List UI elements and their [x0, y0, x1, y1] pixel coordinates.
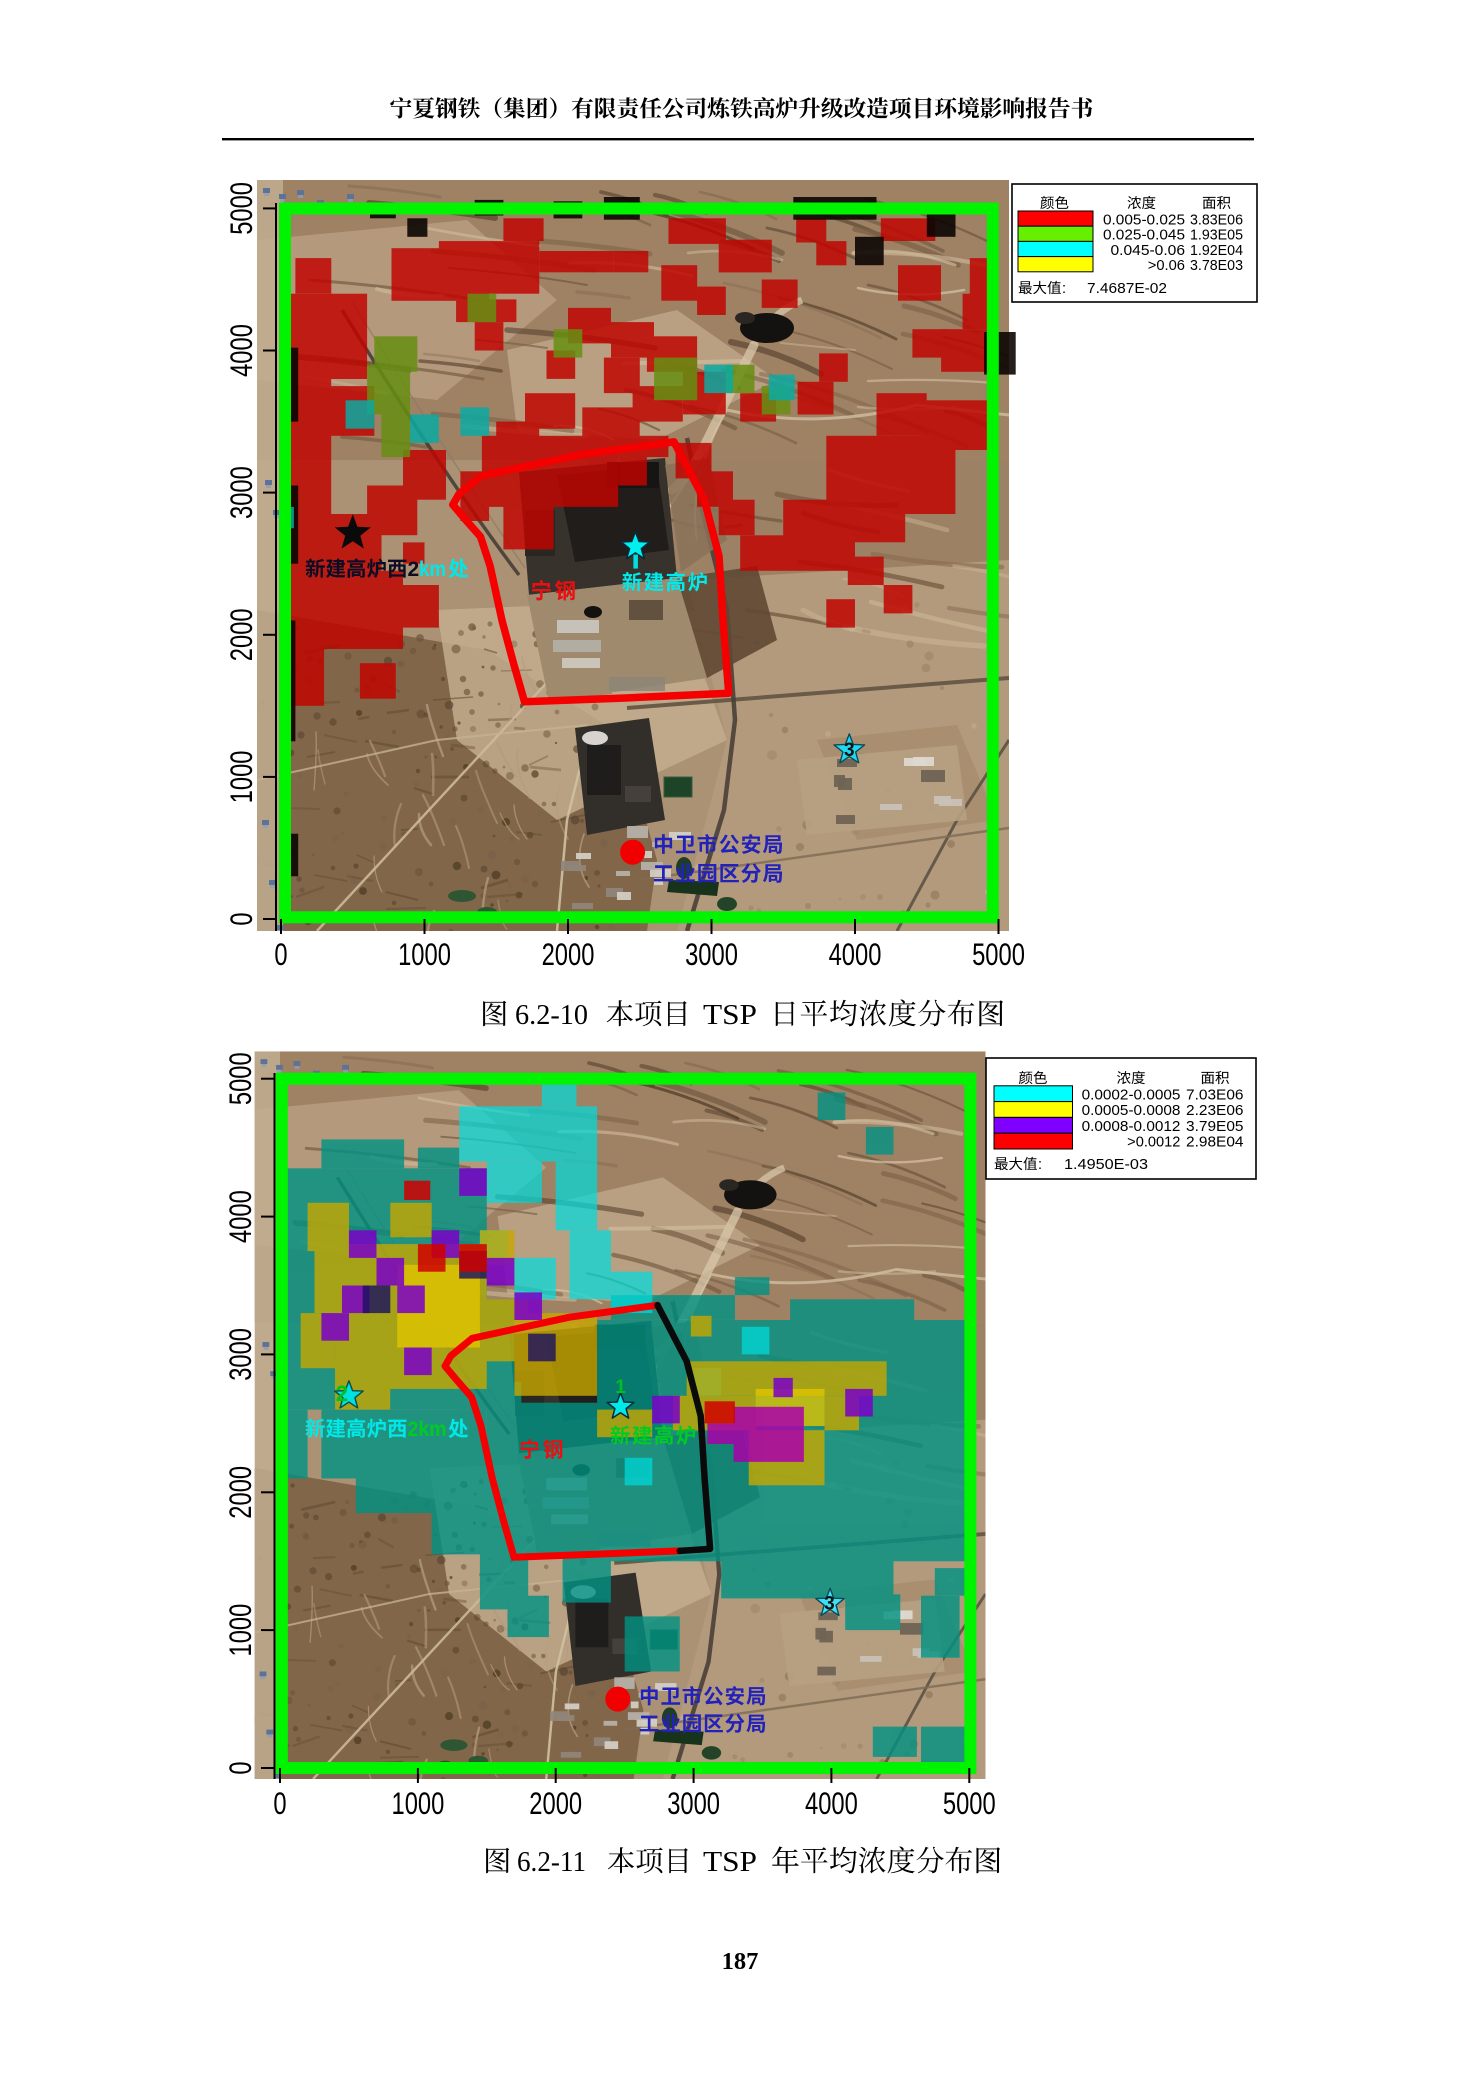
svg-text:5000: 5000	[972, 936, 1025, 972]
svg-text:2000: 2000	[542, 936, 595, 972]
svg-text:0.045-0.06: 0.045-0.06	[1111, 243, 1186, 259]
svg-text:3000: 3000	[222, 1328, 258, 1381]
svg-text:0: 0	[274, 936, 287, 972]
svg-text:2000: 2000	[222, 1466, 258, 1519]
svg-text:1000: 1000	[223, 751, 259, 804]
svg-text:0.005-0.025: 0.005-0.025	[1103, 213, 1185, 229]
svg-text:3000: 3000	[667, 1785, 720, 1821]
svg-text:2.98E04: 2.98E04	[1186, 1135, 1244, 1151]
svg-text:3.83E06: 3.83E06	[1190, 213, 1243, 229]
svg-text:1.92E04: 1.92E04	[1190, 243, 1243, 259]
svg-text:7.03E06: 7.03E06	[1186, 1087, 1244, 1103]
svg-text:km: km	[419, 558, 446, 581]
svg-text::: :	[1062, 281, 1066, 297]
svg-text:0.0005-0.0008: 0.0005-0.0008	[1082, 1103, 1181, 1119]
svg-text:0.025-0.045: 0.025-0.045	[1103, 228, 1185, 244]
svg-text:3.79E05: 3.79E05	[1186, 1119, 1244, 1135]
svg-text:1000: 1000	[398, 936, 451, 972]
svg-text:0.0008-0.0012: 0.0008-0.0012	[1082, 1119, 1181, 1135]
svg-text:3000: 3000	[685, 936, 738, 972]
svg-text:4000: 4000	[829, 936, 882, 972]
svg-text:>0.06: >0.06	[1148, 258, 1185, 274]
svg-text:3: 3	[844, 740, 855, 761]
svg-text:2000: 2000	[529, 1785, 582, 1821]
svg-text:5000: 5000	[943, 1785, 996, 1821]
svg-text:4000: 4000	[223, 324, 259, 377]
svg-text:4000: 4000	[805, 1785, 858, 1821]
svg-text:1: 1	[615, 1377, 626, 1398]
svg-text:2km: 2km	[408, 1418, 447, 1441]
svg-text:3: 3	[824, 1593, 835, 1614]
svg-text:1.93E05: 1.93E05	[1190, 228, 1243, 244]
svg-text:3.78E03: 3.78E03	[1190, 258, 1243, 274]
svg-text:6.2-10: 6.2-10	[515, 999, 588, 1031]
svg-text:0: 0	[222, 1761, 258, 1774]
svg-text:TSP: TSP	[703, 1846, 757, 1878]
svg-text:4000: 4000	[222, 1190, 258, 1243]
svg-text:2000: 2000	[223, 608, 259, 661]
svg-text:0: 0	[273, 1785, 286, 1821]
svg-text:TSP: TSP	[703, 999, 757, 1031]
svg-text:2: 2	[408, 558, 420, 581]
svg-text:>0.0012: >0.0012	[1127, 1135, 1180, 1151]
svg-text:0.0002-0.0005: 0.0002-0.0005	[1082, 1087, 1181, 1103]
svg-text:1000: 1000	[392, 1785, 445, 1821]
svg-text:7.4687E-02: 7.4687E-02	[1087, 281, 1167, 297]
svg-text:6.2-11: 6.2-11	[517, 1846, 586, 1878]
svg-text::: :	[1038, 1157, 1042, 1173]
svg-text:5000: 5000	[222, 1052, 258, 1105]
svg-text:3000: 3000	[223, 466, 259, 519]
svg-text:0: 0	[223, 912, 259, 925]
svg-text:2.23E06: 2.23E06	[1186, 1103, 1244, 1119]
svg-text:1.4950E-03: 1.4950E-03	[1064, 1157, 1148, 1173]
svg-text:5000: 5000	[223, 182, 259, 235]
svg-text:187: 187	[722, 1948, 759, 1975]
svg-text:2: 2	[336, 1381, 348, 1406]
svg-text:1000: 1000	[222, 1604, 258, 1657]
